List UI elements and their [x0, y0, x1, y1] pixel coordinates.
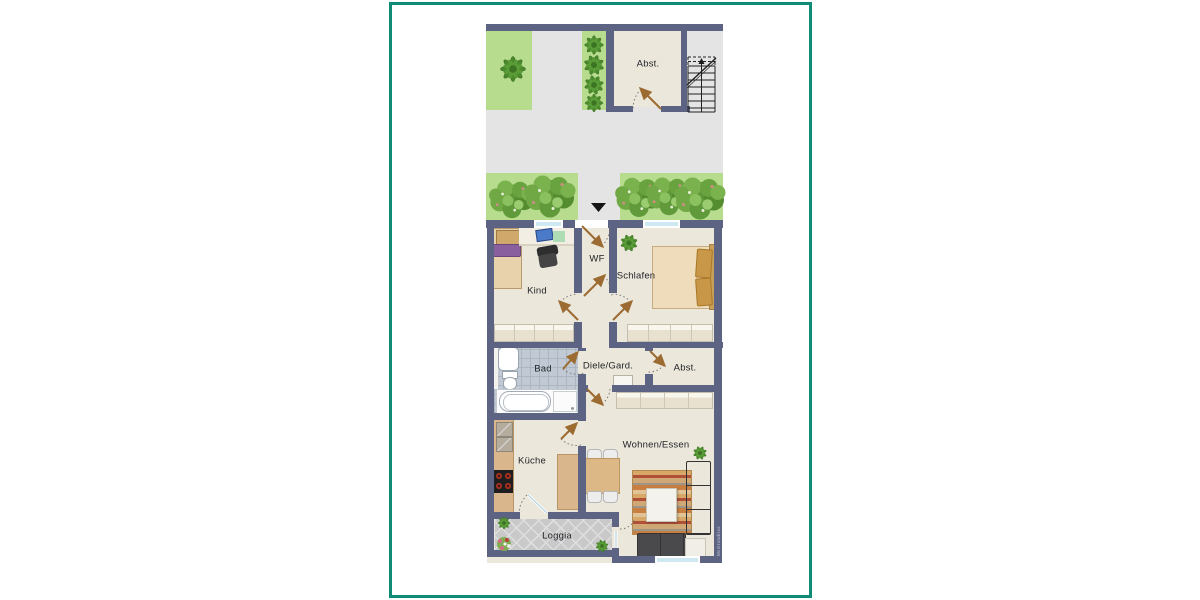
- houseplant-icon: [618, 232, 641, 255]
- room-label-bad: Bad: [534, 364, 552, 375]
- staircase-icon: [687, 57, 716, 112]
- plan-linework: [0, 0, 1200, 600]
- floorplan-page: Abst. WF Kind Schlafen Bad Diele/Gard. A…: [0, 0, 1200, 600]
- room-label-wohnen: Wohnen/Essen: [623, 440, 690, 451]
- room-label-wf: WF: [589, 254, 604, 265]
- tree-icon: [501, 57, 526, 82]
- room-label-loggia: Loggia: [542, 531, 572, 542]
- door-swings: [519, 89, 664, 548]
- hedge-bushes-icon: [489, 176, 725, 220]
- room-label-diele: Diele/Gard.: [583, 361, 633, 372]
- entrance-arrow-icon: [591, 203, 606, 212]
- room-label-abst-top: Abst.: [637, 59, 660, 70]
- room-label-schlafen: Schlafen: [617, 271, 656, 282]
- flowerpot-icon: [497, 537, 511, 551]
- houseplant-icon: [691, 444, 708, 461]
- shrub-row-icon: [581, 36, 607, 113]
- houseplant-icon: [594, 538, 611, 555]
- watermark: McGrundriss: [716, 510, 721, 556]
- room-label-kueche: Küche: [518, 456, 546, 467]
- houseplant-icon: [498, 517, 510, 529]
- room-label-abst: Abst.: [674, 363, 697, 374]
- room-label-kind: Kind: [527, 286, 547, 297]
